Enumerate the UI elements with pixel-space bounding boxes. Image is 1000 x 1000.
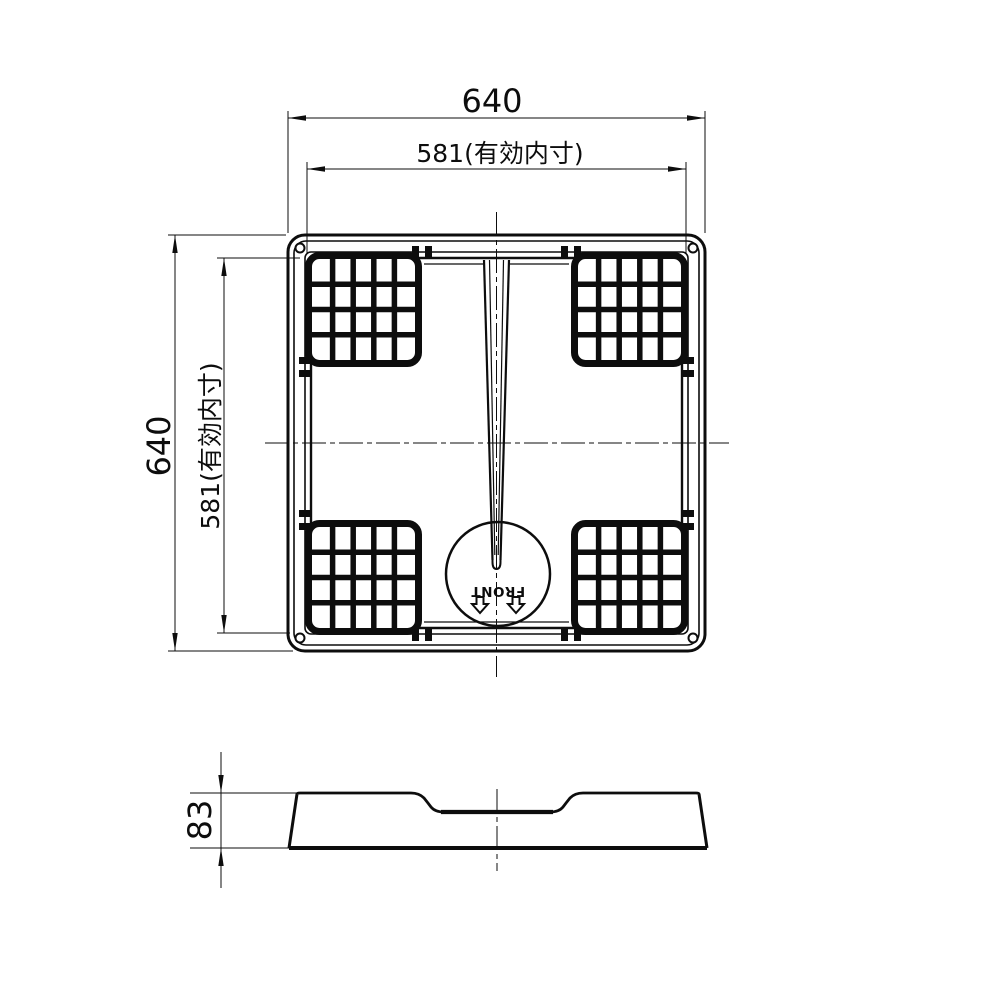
rim-tab — [681, 510, 694, 517]
arrowhead — [218, 775, 223, 793]
arrowhead — [172, 235, 177, 253]
rim-tab — [561, 628, 568, 641]
rim-tab — [574, 628, 581, 641]
corner-hole — [689, 634, 698, 643]
arrowhead — [307, 166, 325, 171]
dim-height-inner-value: 581(有効内寸) — [196, 362, 225, 529]
dim-side-height-value: 83 — [181, 800, 219, 841]
arrowhead — [221, 615, 226, 633]
dim-width-inner: 581(有効内寸) — [307, 139, 686, 254]
dim-side-height: 83 — [181, 752, 297, 888]
arrowhead — [218, 848, 223, 866]
profile-top-edge — [297, 793, 699, 812]
rim-tab — [425, 628, 432, 641]
corner-hole — [689, 244, 698, 253]
grid-pad-bottom-left — [309, 524, 419, 632]
rim-tab — [425, 246, 432, 259]
grid-pad-bottom-right — [575, 524, 685, 632]
side-view: 83 — [181, 752, 707, 888]
profile-left-edge — [289, 794, 297, 848]
dim-height-outer-value: 640 — [140, 415, 178, 476]
grid-pad-top-left — [309, 256, 419, 364]
corner-hole — [296, 244, 305, 253]
rim-tab — [412, 246, 419, 259]
corner-hole — [296, 634, 305, 643]
rim-tab — [681, 523, 694, 530]
rim-tab — [299, 370, 312, 377]
dim-height-inner: 581(有効内寸) — [196, 258, 300, 633]
funnel-edge-left-outer — [484, 260, 493, 560]
rim-tab — [299, 357, 312, 364]
rim-tab — [561, 246, 568, 259]
rim-tab — [574, 246, 581, 259]
arrowhead — [687, 115, 705, 120]
dim-width-outer-value: 640 — [461, 82, 522, 120]
grid-pad-top-right — [575, 256, 685, 364]
rim-tab — [412, 628, 419, 641]
rim-tab — [681, 357, 694, 364]
arrowhead — [288, 115, 306, 120]
arrowhead — [221, 258, 226, 276]
arrowhead — [668, 166, 686, 171]
rim-tab — [299, 510, 312, 517]
arrowhead — [172, 633, 177, 651]
dim-width-inner-value: 581(有効内寸) — [416, 139, 583, 168]
profile-right-edge — [699, 794, 707, 848]
rim-tab — [681, 370, 694, 377]
pan-profile — [289, 793, 707, 848]
rim-tab — [299, 523, 312, 530]
washing-machine-pan-drawing: FRONT 640 581(有効内寸) — [0, 0, 1000, 1000]
funnel-edge-right-outer — [501, 260, 510, 560]
drawing-sheet: FRONT 640 581(有効内寸) — [0, 0, 1000, 1000]
plan-view: FRONT 640 581(有効内寸) — [140, 82, 729, 677]
